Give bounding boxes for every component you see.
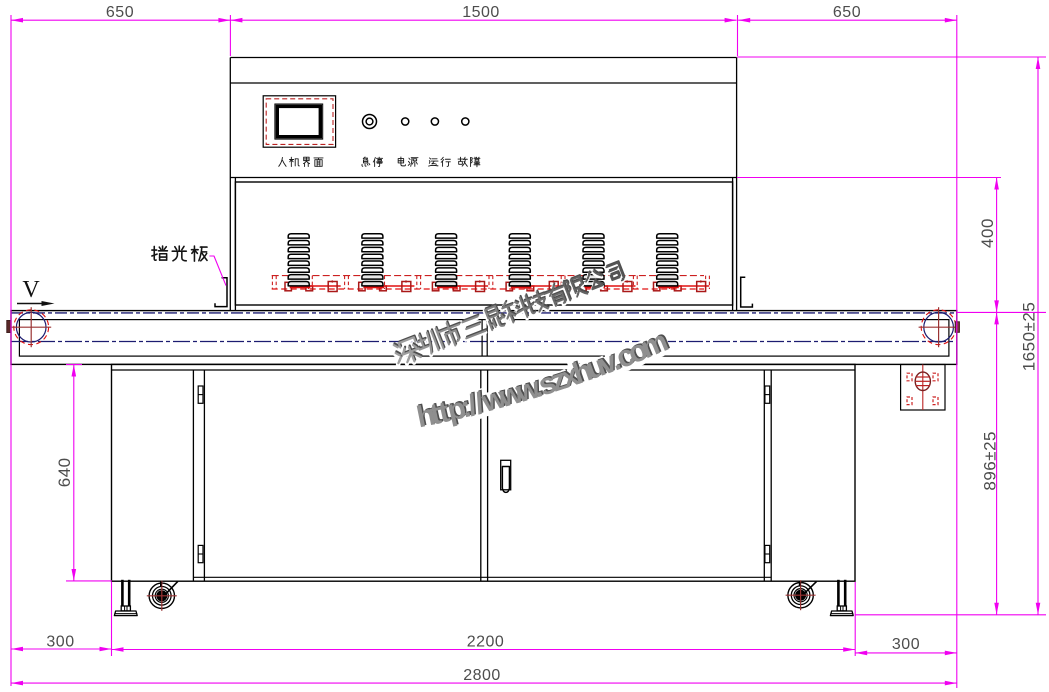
svg-text:896±25: 896±25 bbox=[981, 431, 1000, 491]
svg-text:300: 300 bbox=[892, 636, 920, 653]
svg-text:650: 650 bbox=[106, 4, 134, 21]
svg-text:2200: 2200 bbox=[467, 634, 505, 651]
svg-text:400: 400 bbox=[978, 218, 997, 248]
svg-text:1500: 1500 bbox=[462, 4, 500, 21]
svg-text:640: 640 bbox=[55, 457, 74, 487]
svg-text:V: V bbox=[22, 277, 40, 303]
svg-text:650: 650 bbox=[833, 4, 861, 21]
svg-text:300: 300 bbox=[46, 634, 74, 651]
svg-text:1650±25: 1650±25 bbox=[1020, 302, 1039, 372]
svg-text:2800: 2800 bbox=[463, 667, 501, 684]
